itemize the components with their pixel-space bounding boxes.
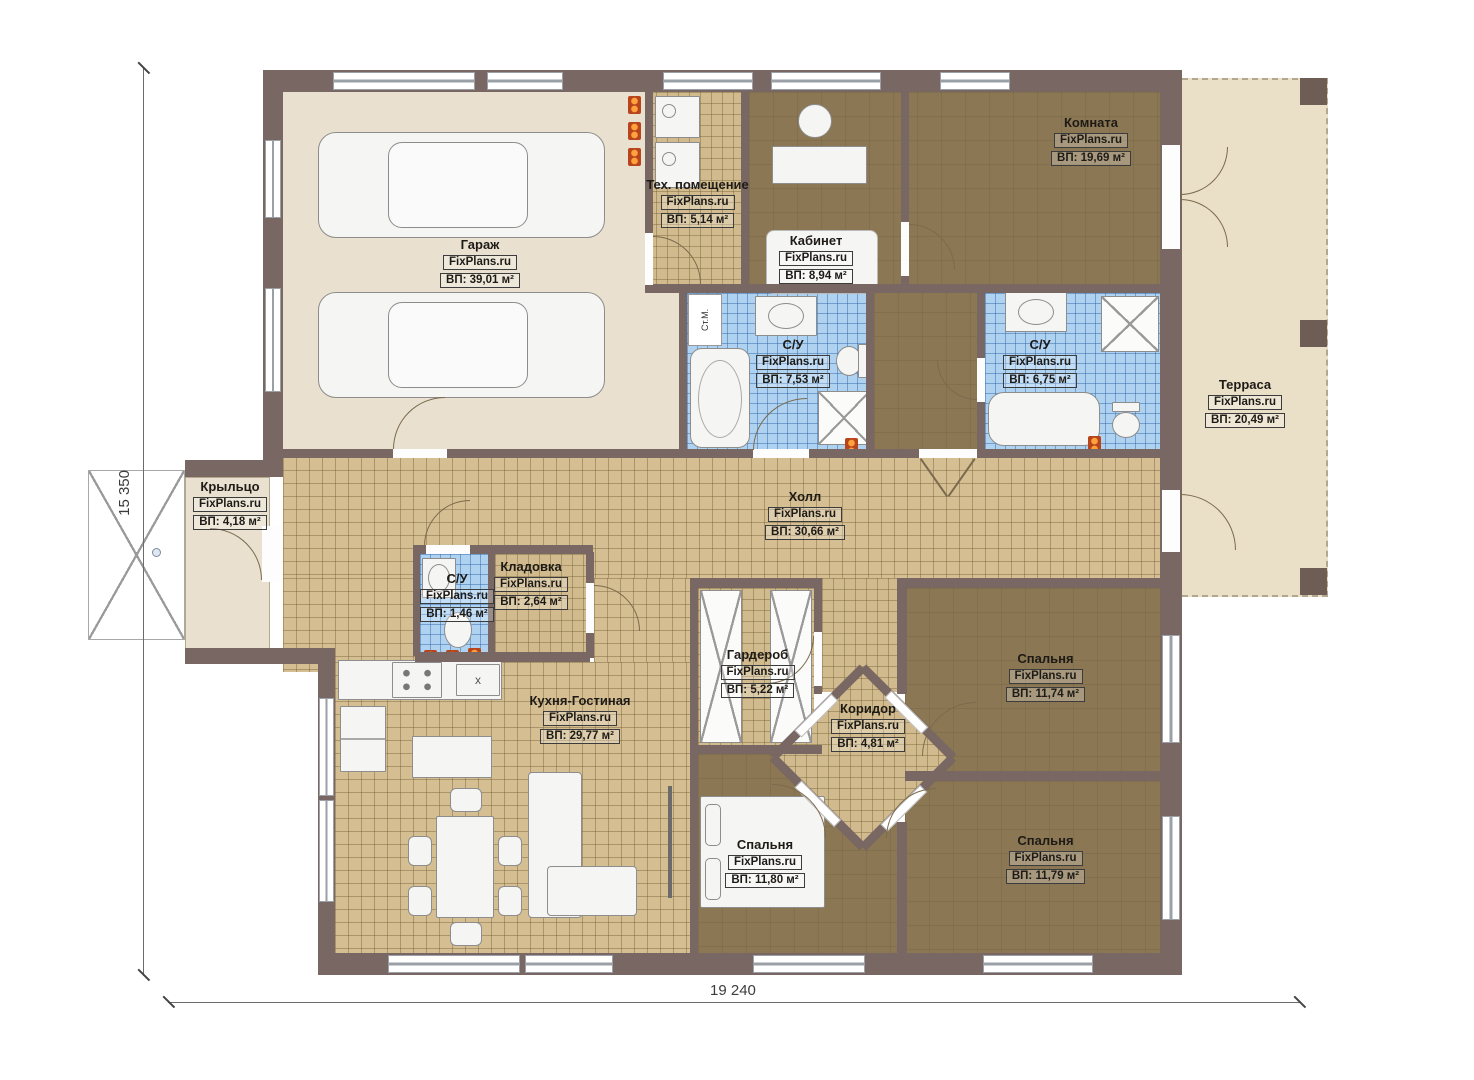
window — [1162, 816, 1180, 920]
room-area: ВП: 2,64 м² — [494, 595, 568, 610]
level-marker-icon — [152, 548, 161, 557]
chair — [498, 836, 522, 866]
dimension-tick — [138, 62, 150, 74]
window — [753, 955, 865, 973]
sink-bowl — [1018, 299, 1054, 325]
floor-plan: Ст.М. x — [0, 0, 1474, 1080]
toilet — [1112, 412, 1140, 438]
window — [265, 288, 281, 392]
room-name: Кабинет — [790, 234, 843, 248]
door-opening — [426, 545, 470, 554]
chair — [450, 788, 482, 812]
room-area: ВП: 5,14 м² — [661, 213, 735, 228]
sink-mark: x — [475, 673, 481, 687]
window — [319, 800, 334, 902]
office-chair — [798, 104, 832, 138]
room-area: ВП: 39,01 м² — [440, 273, 520, 288]
room-name: Холл — [789, 490, 822, 504]
brand: FixPlans.ru — [661, 195, 735, 210]
wall — [905, 578, 1160, 588]
wall — [185, 648, 335, 664]
window — [1162, 635, 1180, 743]
door-opening — [393, 449, 447, 458]
room-area: ВП: 29,77 м² — [540, 729, 620, 744]
wall — [866, 288, 874, 457]
room-name: С/У — [782, 338, 803, 352]
stove — [392, 662, 442, 698]
wall — [679, 288, 687, 457]
brand: FixPlans.ru — [1054, 133, 1128, 148]
car-cabin — [388, 142, 528, 228]
kitchen-sink: x — [456, 664, 500, 696]
terrace-post — [1300, 568, 1327, 595]
room-name: С/У — [1029, 338, 1050, 352]
terrace-post — [1300, 320, 1327, 347]
room-name: Кладовка — [500, 560, 561, 574]
room-area: ВП: 20,49 м² — [1205, 413, 1285, 428]
window — [983, 955, 1093, 973]
dimension-height-label: 15 350 — [116, 470, 133, 516]
wall — [645, 284, 1160, 293]
brand: FixPlans.ru — [768, 507, 842, 522]
wall — [897, 578, 907, 694]
room-label-garage: Гараж FixPlans.ru ВП: 39,01 м² — [400, 238, 560, 288]
brand: FixPlans.ru — [543, 711, 617, 726]
room-label-corridor: Коридор FixPlans.ru ВП: 4,81 м² — [812, 702, 924, 752]
room-area: ВП: 11,74 м² — [1006, 687, 1085, 702]
room-label-tech-room: Тех. помещение FixPlans.ru ВП: 5,14 м² — [630, 178, 765, 228]
room-name: Гараж — [461, 238, 500, 252]
brand: FixPlans.ru — [831, 719, 905, 734]
washing-machine: Ст.М. — [688, 294, 722, 346]
window — [663, 72, 753, 90]
wall — [185, 460, 283, 477]
brand: FixPlans.ru — [779, 251, 853, 266]
brand: FixPlans.ru — [1003, 355, 1077, 370]
room-area: ВП: 4,81 м² — [831, 737, 905, 752]
wall — [698, 578, 822, 588]
brand: FixPlans.ru — [721, 665, 795, 680]
room-label-terrace: Терраса FixPlans.ru ВП: 20,49 м² — [1180, 378, 1310, 428]
room-name: Коридор — [840, 702, 896, 716]
room-area: ВП: 6,75 м² — [1003, 373, 1077, 388]
room-label-bathroom-right: С/У FixPlans.ru ВП: 6,75 м² — [975, 338, 1105, 388]
room-name: Тех. помещение — [646, 178, 749, 192]
window — [265, 140, 281, 218]
window — [333, 72, 475, 90]
room-name: Крыльцо — [200, 480, 259, 494]
room-name: Спальня — [1017, 834, 1073, 848]
tv — [668, 786, 672, 898]
brand: FixPlans.ru — [756, 355, 830, 370]
room-label-storage: Кладовка FixPlans.ru ВП: 2,64 м² — [476, 560, 586, 610]
chair — [408, 836, 432, 866]
room-name: Спальня — [1017, 652, 1073, 666]
office-desk — [772, 146, 867, 184]
room-name: Терраса — [1219, 378, 1271, 392]
room-label-kitchen-living: Кухня-Гостиная FixPlans.ru ВП: 29,77 м² — [500, 694, 660, 744]
toilet-tank — [1112, 402, 1140, 412]
boiler-dial-icon — [662, 104, 676, 118]
room-area: ВП: 11,80 м² — [725, 873, 804, 888]
heater-icon — [628, 96, 641, 114]
kitchen-island — [412, 736, 492, 778]
dining-table — [436, 816, 494, 918]
room-name: Комната — [1064, 116, 1118, 130]
room-area: ВП: 30,66 м² — [765, 525, 845, 540]
heater-icon — [628, 122, 641, 140]
window — [525, 955, 613, 973]
room-name: Гардероб — [727, 648, 788, 662]
window — [388, 955, 520, 973]
wall — [415, 652, 590, 662]
room-name: Кухня-Гостиная — [529, 694, 630, 708]
room-area: ВП: 4,18 м² — [193, 515, 267, 530]
door-opening — [645, 233, 653, 285]
brand: FixPlans.ru — [1208, 395, 1282, 410]
dimension-width-label: 19 240 — [710, 982, 756, 999]
brand: FixPlans.ru — [494, 577, 568, 592]
wall — [690, 745, 822, 754]
room-label-wardrobe: Гардероб FixPlans.ru ВП: 5,22 м² — [700, 648, 815, 698]
dimension-line-vertical — [143, 68, 144, 976]
door-opening — [753, 449, 809, 458]
terrace-post — [1300, 78, 1327, 105]
brand: FixPlans.ru — [1009, 851, 1083, 866]
chair — [498, 886, 522, 916]
heater-icon — [628, 148, 641, 166]
room-label-room: Комната FixPlans.ru ВП: 19,69 м² — [1016, 116, 1166, 166]
room-label-porch: Крыльцо FixPlans.ru ВП: 4,18 м² — [178, 480, 282, 530]
room-area: ВП: 11,79 м² — [1006, 869, 1085, 884]
room-area: ВП: 7,53 м² — [756, 373, 830, 388]
porch-steps — [88, 470, 185, 640]
shower — [1101, 296, 1159, 352]
dimension-line-horizontal — [168, 1002, 1300, 1003]
fridge-divider — [341, 738, 385, 740]
wall — [690, 578, 698, 960]
wall — [897, 822, 907, 960]
room-label-hall: Холл FixPlans.ru ВП: 30,66 м² — [740, 490, 870, 540]
bathtub — [988, 392, 1100, 446]
room-label-bedroom-bottom-left: Спальня FixPlans.ru ВП: 11,80 м² — [700, 838, 830, 888]
sink-bowl — [768, 303, 804, 329]
room-label-bathroom-left: С/У FixPlans.ru ВП: 7,53 м² — [728, 338, 858, 388]
door-opening — [919, 449, 977, 458]
room-name: Спальня — [737, 838, 793, 852]
window — [487, 72, 563, 90]
brand: FixPlans.ru — [443, 255, 517, 270]
door-opening — [262, 526, 283, 582]
room-area: ВП: 19,69 м² — [1051, 151, 1131, 166]
dimension-tick — [138, 969, 150, 981]
room-label-office: Кабинет FixPlans.ru ВП: 8,94 м² — [752, 234, 880, 284]
door-opening — [814, 632, 822, 686]
door-opening — [586, 583, 594, 633]
chair — [450, 922, 482, 946]
room-area: ВП: 5,22 м² — [721, 683, 795, 698]
boiler — [655, 96, 700, 138]
shower — [818, 391, 870, 445]
room-name: С/У — [446, 572, 467, 586]
car-cabin — [388, 302, 528, 388]
room-label-bedroom-bottom-right: Спальня FixPlans.ru ВП: 11,79 м² — [978, 834, 1113, 884]
brand: FixPlans.ru — [1009, 669, 1083, 684]
wall — [263, 70, 283, 463]
brand: FixPlans.ru — [193, 497, 267, 512]
chair — [408, 886, 432, 916]
room-area: ВП: 8,94 м² — [779, 269, 853, 284]
washer-dial-icon — [662, 152, 676, 166]
window — [940, 72, 1010, 90]
window — [319, 698, 334, 796]
window — [771, 72, 881, 90]
door-opening — [901, 222, 909, 276]
brand: FixPlans.ru — [728, 855, 802, 870]
room-label-bedroom-right: Спальня FixPlans.ru ВП: 11,74 м² — [978, 652, 1113, 702]
sofa-foot — [547, 866, 637, 916]
door-opening — [1162, 490, 1180, 552]
